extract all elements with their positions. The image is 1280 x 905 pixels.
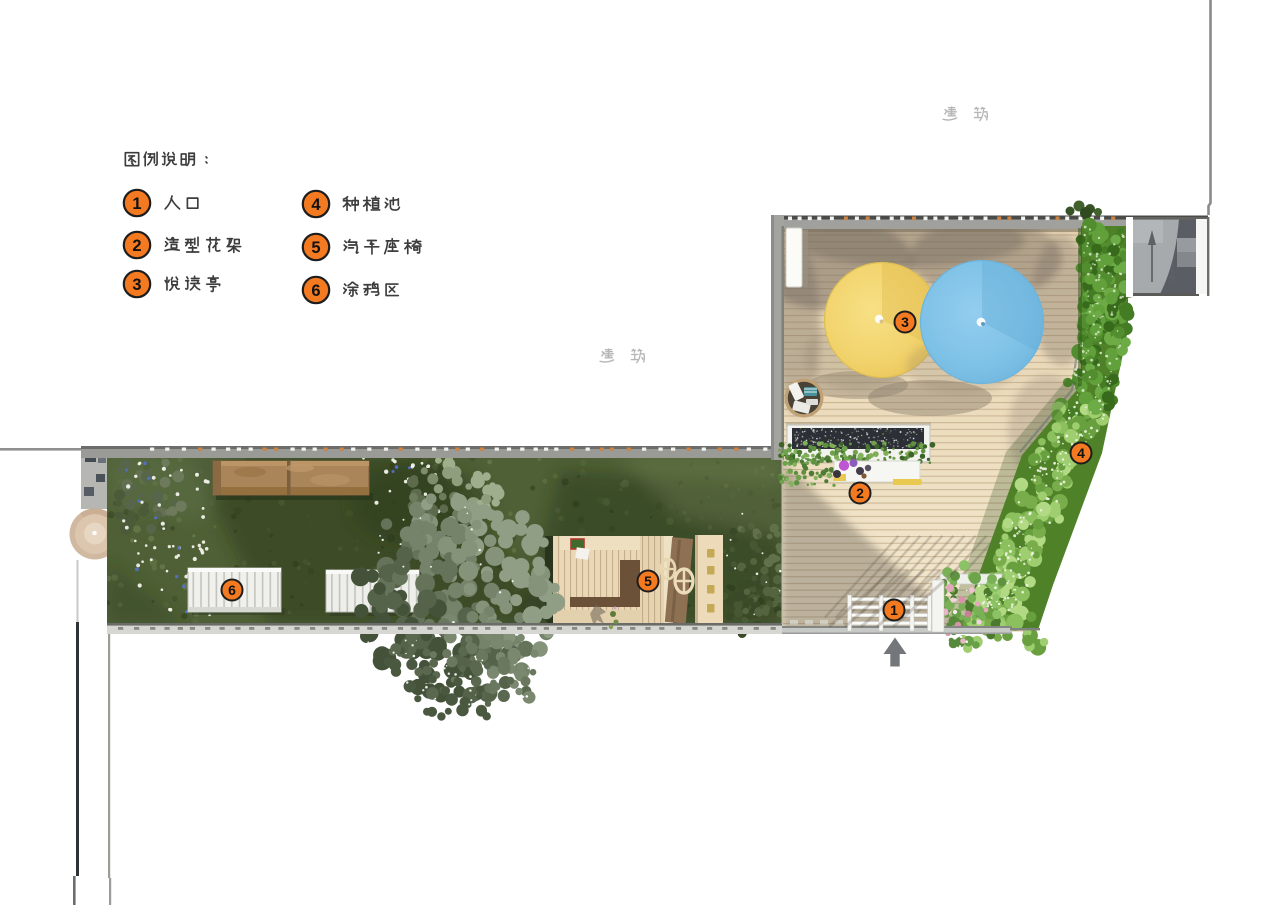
- svg-text:6: 6: [228, 582, 236, 598]
- svg-text:1: 1: [890, 602, 898, 618]
- svg-text:3: 3: [132, 276, 141, 294]
- svg-text:2: 2: [856, 485, 864, 501]
- svg-text:4: 4: [311, 196, 321, 214]
- svg-text:3: 3: [901, 314, 909, 330]
- svg-text:4: 4: [1077, 445, 1085, 461]
- svg-text:2: 2: [132, 237, 141, 255]
- svg-text:6: 6: [311, 282, 320, 300]
- svg-text:5: 5: [311, 239, 320, 257]
- svg-text:1: 1: [132, 195, 141, 213]
- svg-text:5: 5: [644, 573, 652, 589]
